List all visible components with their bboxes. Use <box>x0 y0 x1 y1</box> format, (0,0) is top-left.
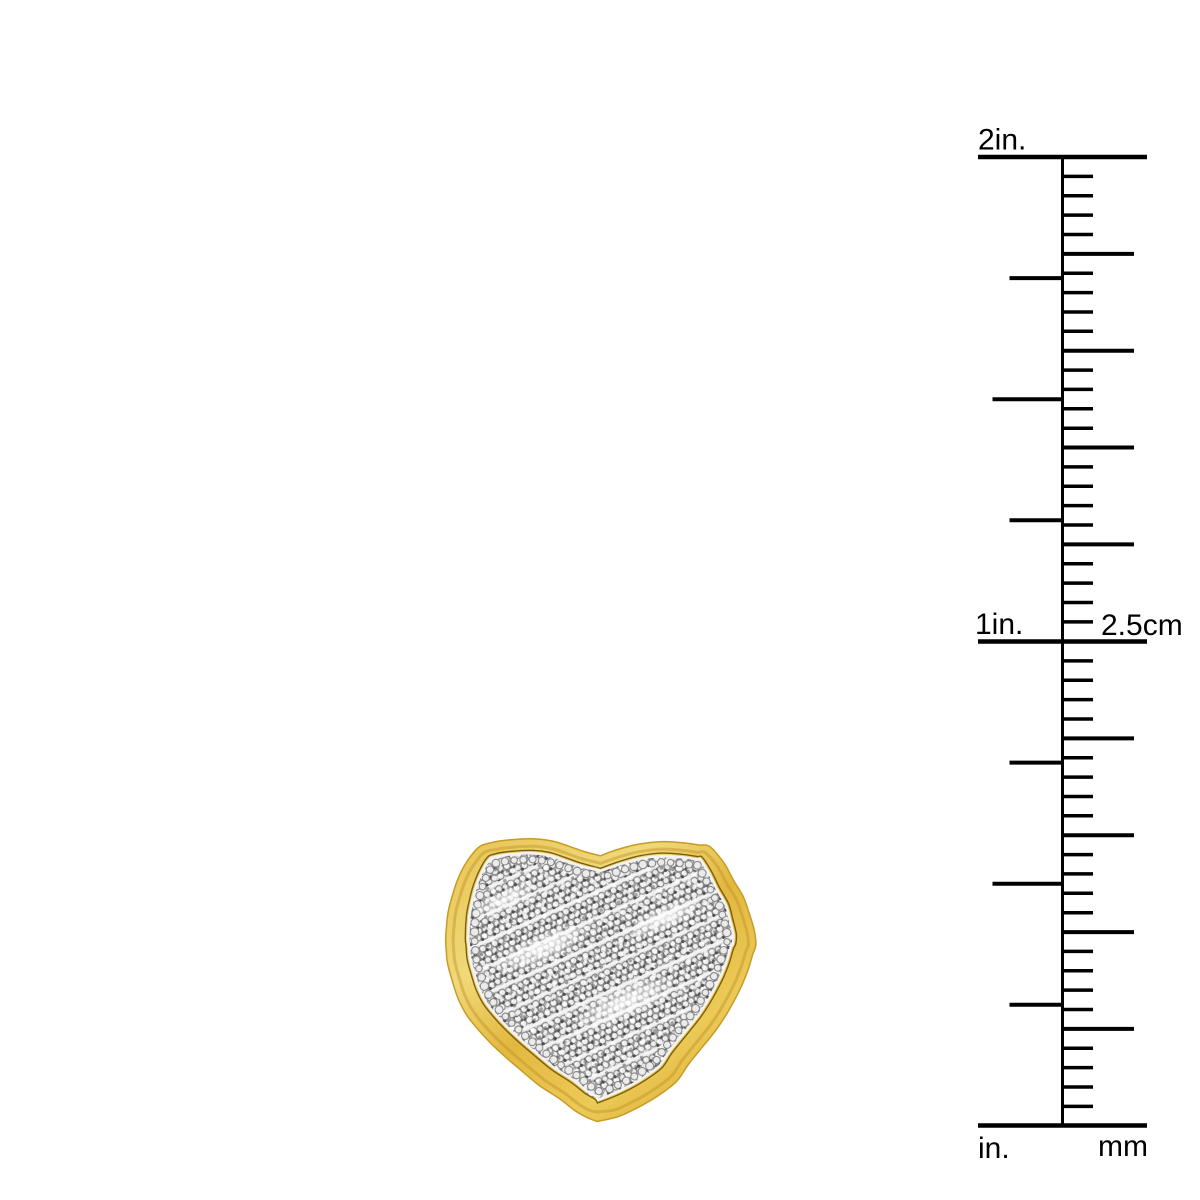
svg-text:2.5cm: 2.5cm <box>1101 609 1183 642</box>
svg-text:in.: in. <box>978 1132 1010 1165</box>
svg-text:mm: mm <box>1098 1130 1148 1163</box>
svg-text:1in.: 1in. <box>975 608 1023 641</box>
svg-text:2in.: 2in. <box>978 124 1026 157</box>
